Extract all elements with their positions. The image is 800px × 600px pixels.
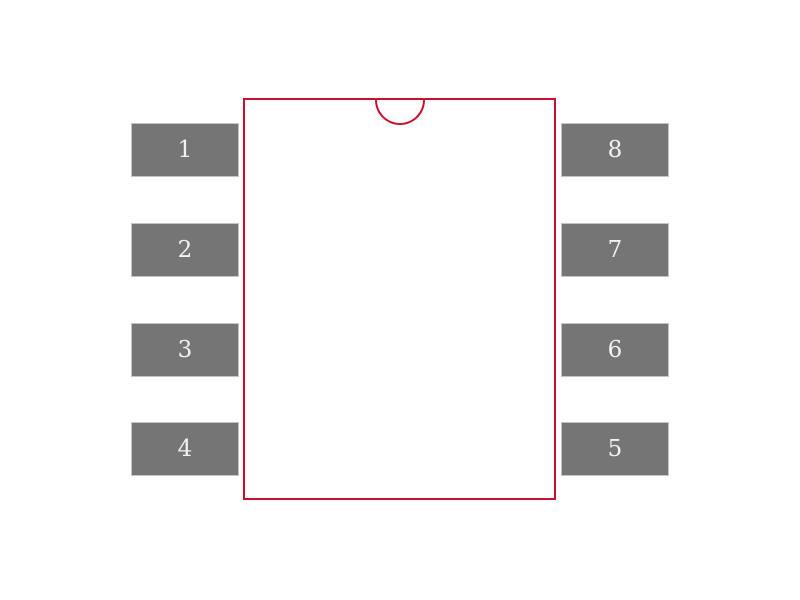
pad-number: 4 — [178, 436, 193, 462]
pin1-notch — [375, 100, 425, 125]
package-body-outline — [243, 98, 556, 500]
pad-number: 8 — [608, 137, 623, 163]
footprint-diagram: 1 2 3 4 8 7 6 5 — [0, 0, 800, 600]
pad-2: 2 — [131, 223, 239, 277]
pad-5: 5 — [561, 422, 669, 476]
pad-8: 8 — [561, 123, 669, 177]
pad-1: 1 — [131, 123, 239, 177]
pad-number: 3 — [178, 337, 193, 363]
pad-number: 6 — [608, 337, 623, 363]
pad-7: 7 — [561, 223, 669, 277]
pad-number: 7 — [608, 237, 623, 263]
pad-number: 2 — [178, 237, 193, 263]
pad-6: 6 — [561, 323, 669, 377]
pad-number: 5 — [608, 436, 623, 462]
pad-4: 4 — [131, 422, 239, 476]
pad-number: 1 — [178, 137, 193, 163]
pad-3: 3 — [131, 323, 239, 377]
